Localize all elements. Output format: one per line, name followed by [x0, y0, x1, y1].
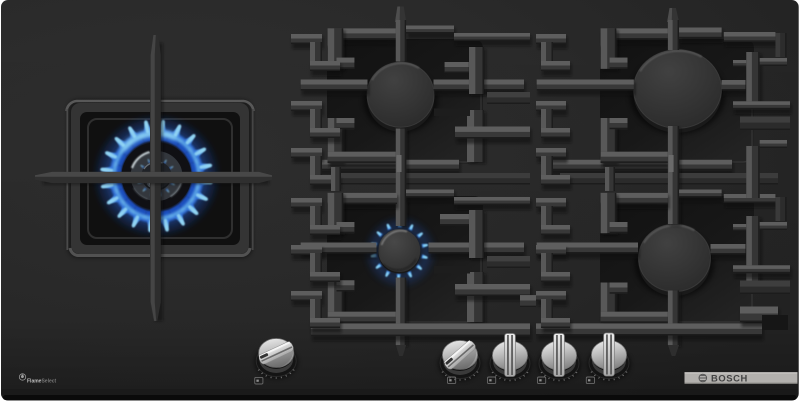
svg-text:FlameSelect: FlameSelect [27, 378, 57, 384]
svg-text:BOSCH: BOSCH [711, 372, 748, 383]
